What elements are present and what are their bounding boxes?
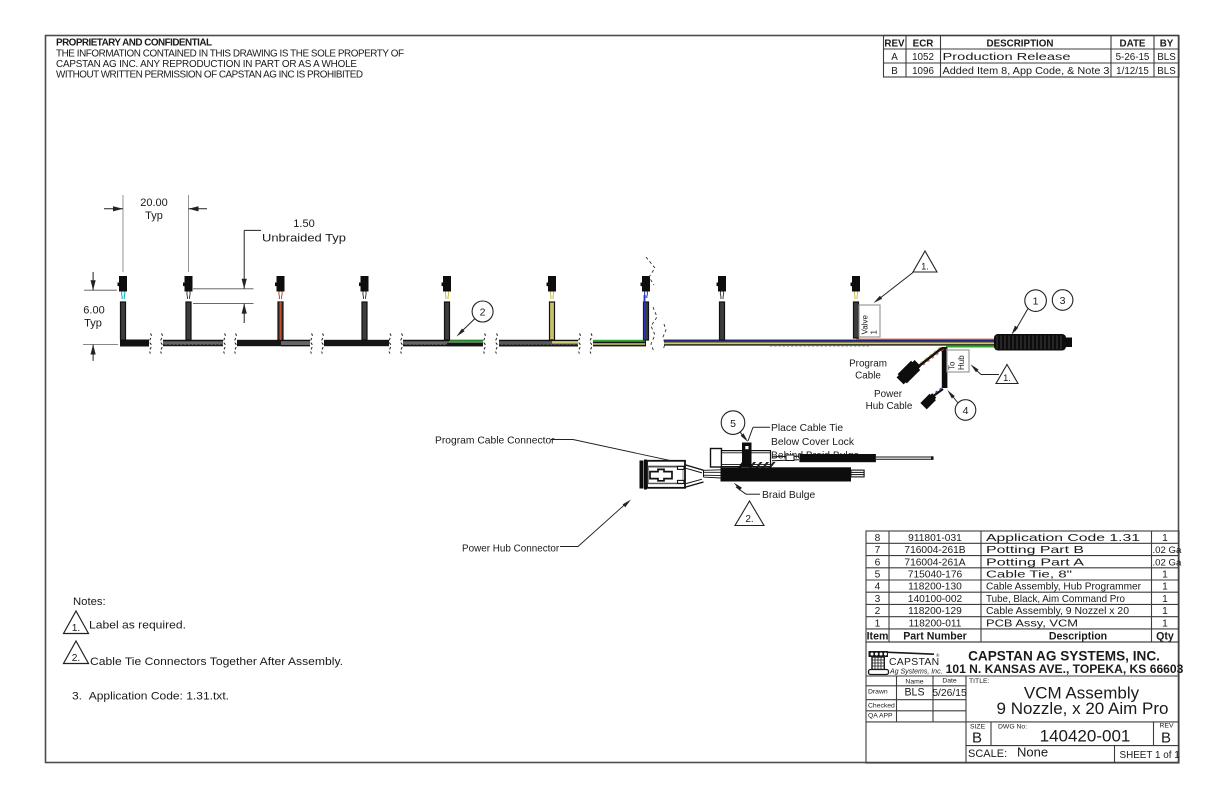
svg-text:1096: 1096 (912, 66, 934, 77)
svg-text:CAPSTAN: CAPSTAN (889, 657, 939, 668)
svg-text:Potting Part B: Potting Part B (986, 545, 1084, 556)
svg-text:2: 2 (480, 307, 486, 319)
svg-text:1: 1 (875, 618, 881, 629)
svg-text:20.00: 20.00 (140, 197, 168, 209)
svg-text:Cable Assembly, Hub Programmer: Cable Assembly, Hub Programmer (986, 582, 1142, 593)
svg-text:7: 7 (875, 545, 881, 556)
svg-text:Date: Date (942, 678, 957, 685)
svg-text:Checked: Checked (868, 702, 895, 709)
svg-text:THE INFORMATION CONTAINED IN T: THE INFORMATION CONTAINED IN THIS DRAWIN… (56, 49, 404, 60)
svg-text:A: A (891, 52, 898, 63)
svg-text:Program Cable Connector: Program Cable Connector (435, 436, 555, 447)
svg-text:PCB Assy, VCM: PCB Assy, VCM (986, 618, 1078, 629)
svg-text:BLS: BLS (904, 687, 924, 699)
svg-text:Name: Name (905, 679, 923, 686)
svg-text:3: 3 (1060, 295, 1066, 307)
svg-text:None: None (1017, 745, 1048, 760)
svg-text:1: 1 (870, 330, 879, 335)
svg-text:101 N. KANSAS AVE., TOPEKA, KS: 101 N. KANSAS AVE., TOPEKA, KS 66603 (946, 662, 1184, 676)
svg-text:2.: 2. (745, 514, 753, 525)
svg-text:1: 1 (1162, 606, 1168, 617)
svg-text:1.: 1. (921, 262, 929, 272)
svg-text:SHEET 1 of 1: SHEET 1 of 1 (1120, 750, 1181, 761)
svg-text:1: 1 (1162, 582, 1168, 593)
svg-text:9 Nozzle, x 20 Aim Pro: 9 Nozzle, x 20 Aim Pro (997, 699, 1169, 718)
svg-text:To: To (948, 361, 957, 370)
svg-text:Hub: Hub (957, 355, 966, 370)
svg-text:2.: 2. (72, 653, 81, 664)
svg-text:Cable Tie Connectors Together: Cable Tie Connectors Together After Asse… (90, 656, 343, 668)
svg-text:716004-261A: 716004-261A (904, 557, 965, 568)
svg-text:3. Application Code: 1.31.txt: 3. Application Code: 1.31.txt. (72, 691, 229, 703)
svg-text:.02 Ga: .02 Ga (1153, 557, 1182, 568)
svg-text:Ag Systems, Inc.: Ag Systems, Inc. (889, 669, 943, 676)
svg-text:8: 8 (875, 533, 881, 544)
svg-text:Added Item 8, App Code, & Note: Added Item 8, App Code, & Note 3 (943, 66, 1111, 77)
svg-text:118200-011: 118200-011 (909, 618, 962, 629)
svg-text:715040-176: 715040-176 (908, 570, 963, 581)
svg-text:5/26/15: 5/26/15 (932, 688, 967, 699)
svg-text:WITHOUT WRITTEN PERMISSION OF: WITHOUT WRITTEN PERMISSION OF CAPSTAN AG… (56, 70, 363, 81)
svg-text:1: 1 (1162, 533, 1168, 544)
svg-text:911801-031: 911801-031 (908, 533, 962, 544)
svg-text:ECR: ECR (913, 39, 934, 50)
svg-text:Potting Part A: Potting Part A (986, 557, 1084, 568)
svg-text:Below Cover Lock: Below Cover Lock (771, 437, 855, 448)
svg-text:Item: Item (867, 630, 889, 642)
svg-text:1.: 1. (1003, 373, 1011, 383)
svg-text:Description: Description (1049, 630, 1107, 642)
svg-text:1.: 1. (72, 623, 81, 634)
svg-text:Braid Bulge: Braid Bulge (762, 490, 816, 501)
svg-text:B: B (1161, 730, 1171, 747)
svg-text:Place Cable Tie: Place Cable Tie (771, 423, 843, 434)
svg-text:1.50: 1.50 (293, 218, 314, 230)
svg-text:Qty: Qty (1156, 630, 1174, 642)
svg-text:Typ: Typ (84, 318, 102, 330)
svg-text:Part Number: Part Number (903, 630, 967, 642)
svg-text:6.00: 6.00 (83, 305, 104, 317)
svg-text:4: 4 (875, 582, 881, 593)
svg-text:PROPRIETARY AND CONFIDENTIAL: PROPRIETARY AND CONFIDENTIAL (56, 38, 212, 49)
svg-text:140100-002: 140100-002 (908, 594, 963, 605)
svg-text:5: 5 (875, 570, 881, 581)
svg-text:1: 1 (1162, 570, 1168, 581)
svg-text:Tube, Black, Aim Command Pro: Tube, Black, Aim Command Pro (986, 594, 1125, 605)
svg-text:Production Release: Production Release (943, 52, 1072, 63)
svg-text:B: B (891, 66, 898, 77)
svg-text:2: 2 (875, 606, 881, 617)
svg-text:BY: BY (1160, 39, 1174, 50)
svg-text:DWG No:: DWG No: (998, 724, 1027, 731)
svg-text:REV: REV (1160, 723, 1174, 730)
svg-text:Cable Tie, 8": Cable Tie, 8" (986, 570, 1073, 581)
svg-text:Typ: Typ (145, 210, 163, 222)
svg-text:BLS: BLS (1157, 52, 1176, 63)
svg-text:Hub Cable: Hub Cable (866, 401, 913, 412)
svg-text:118200-130: 118200-130 (908, 582, 962, 593)
svg-text:DESCRIPTION: DESCRIPTION (987, 39, 1054, 50)
svg-text:1: 1 (1033, 296, 1039, 308)
svg-text:Application Code 1.31: Application Code 1.31 (986, 533, 1141, 544)
svg-text:B: B (972, 730, 982, 747)
svg-text:Notes:: Notes: (73, 596, 106, 608)
svg-text:CAPSTAN AG INC. ANY REPRODUCTI: CAPSTAN AG INC. ANY REPRODUCTION IN PART… (56, 59, 357, 70)
svg-text:REV: REV (884, 39, 905, 50)
svg-text:1/12/15: 1/12/15 (1116, 66, 1149, 77)
svg-text:1052: 1052 (912, 52, 934, 63)
svg-text:5-26-15: 5-26-15 (1116, 52, 1150, 63)
svg-text:Cable: Cable (855, 371, 881, 382)
svg-text:3: 3 (875, 594, 881, 605)
svg-text:QA APP: QA APP (868, 713, 893, 720)
svg-text:Unbraided Typ: Unbraided Typ (262, 233, 346, 245)
svg-text:140420-001: 140420-001 (1040, 727, 1131, 746)
svg-text:5: 5 (730, 418, 736, 430)
svg-text:1: 1 (1162, 618, 1168, 629)
svg-text:6: 6 (875, 557, 881, 568)
svg-text:Power Hub Connector: Power Hub Connector (462, 544, 560, 555)
svg-text:4: 4 (963, 405, 969, 417)
svg-text:TITLE:: TITLE: (969, 678, 990, 685)
svg-text:BLS: BLS (1157, 66, 1176, 77)
svg-text:Power: Power (874, 389, 903, 400)
svg-text:Cable Assembly, 9 Nozzel x 20: Cable Assembly, 9 Nozzel x 20 (986, 606, 1129, 617)
svg-text:Drawn: Drawn (868, 689, 888, 696)
svg-text:SCALE:: SCALE: (968, 748, 1007, 760)
svg-text:716004-261B: 716004-261B (904, 545, 965, 556)
svg-text:.02 Ga: .02 Ga (1153, 545, 1182, 556)
svg-text:Valve: Valve (861, 315, 870, 335)
svg-text:1: 1 (1162, 594, 1168, 605)
svg-text:Label as required.: Label as required. (89, 620, 186, 632)
svg-text:Program: Program (849, 359, 887, 370)
svg-text:DATE: DATE (1120, 39, 1146, 50)
svg-text:118200-129: 118200-129 (908, 606, 962, 617)
